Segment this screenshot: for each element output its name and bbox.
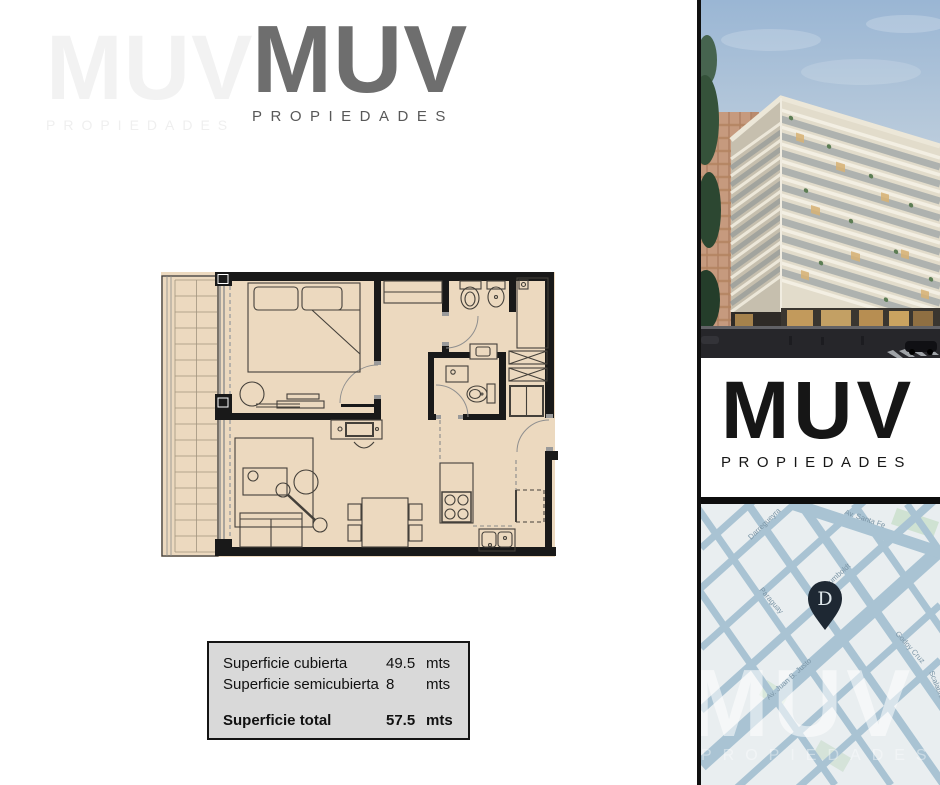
- row-value: 49.5: [386, 653, 426, 674]
- row-label: Superficie cubierta: [223, 653, 386, 674]
- map-watermark-tagline: PROPIEDADES: [701, 747, 938, 764]
- pin-letter: D: [817, 588, 832, 610]
- row-unit: mts: [426, 710, 456, 731]
- row-unit: mts: [426, 674, 456, 695]
- right-panel-logo: MUV PROPIEDADES: [701, 358, 940, 497]
- location-map: MUV PROPIEDADES Av. Santa Fe Darregueyra…: [701, 504, 940, 785]
- row-label: Superficie total: [223, 710, 386, 731]
- street: [701, 326, 940, 358]
- watermark-brand-tagline: PROPIEDADES: [46, 117, 253, 133]
- table-row-total: Superficie total 57.5 mts: [223, 710, 456, 731]
- map-top-border: [701, 497, 940, 504]
- brand-tagline: PROPIEDADES: [252, 108, 468, 125]
- watermark-logo: MUV PROPIEDADES: [46, 28, 253, 133]
- right-brand-tagline: PROPIEDADES: [721, 454, 940, 471]
- table-row: Superficie cubierta 49.5 mts: [223, 653, 456, 674]
- row-value: 57.5: [386, 710, 426, 731]
- main-building: [731, 98, 940, 352]
- row-value: 8: [386, 674, 426, 695]
- row-unit: mts: [426, 653, 456, 674]
- brand-name: MUV: [252, 18, 468, 102]
- right-brand-name: MUV: [721, 374, 940, 448]
- watermark-brand-name: MUV: [46, 28, 253, 109]
- floor-plan: [160, 268, 558, 562]
- building-photo: [701, 0, 940, 358]
- brand-logo: MUV PROPIEDADES: [252, 18, 468, 125]
- table-row: Superficie semicubierta 8 mts: [223, 674, 456, 695]
- surface-table: Superficie cubierta 49.5 mts Superficie …: [207, 641, 470, 740]
- listing-flyer: MUV PROPIEDADES MUV PROPIEDADES: [0, 0, 940, 785]
- row-label: Superficie semicubierta: [223, 674, 386, 695]
